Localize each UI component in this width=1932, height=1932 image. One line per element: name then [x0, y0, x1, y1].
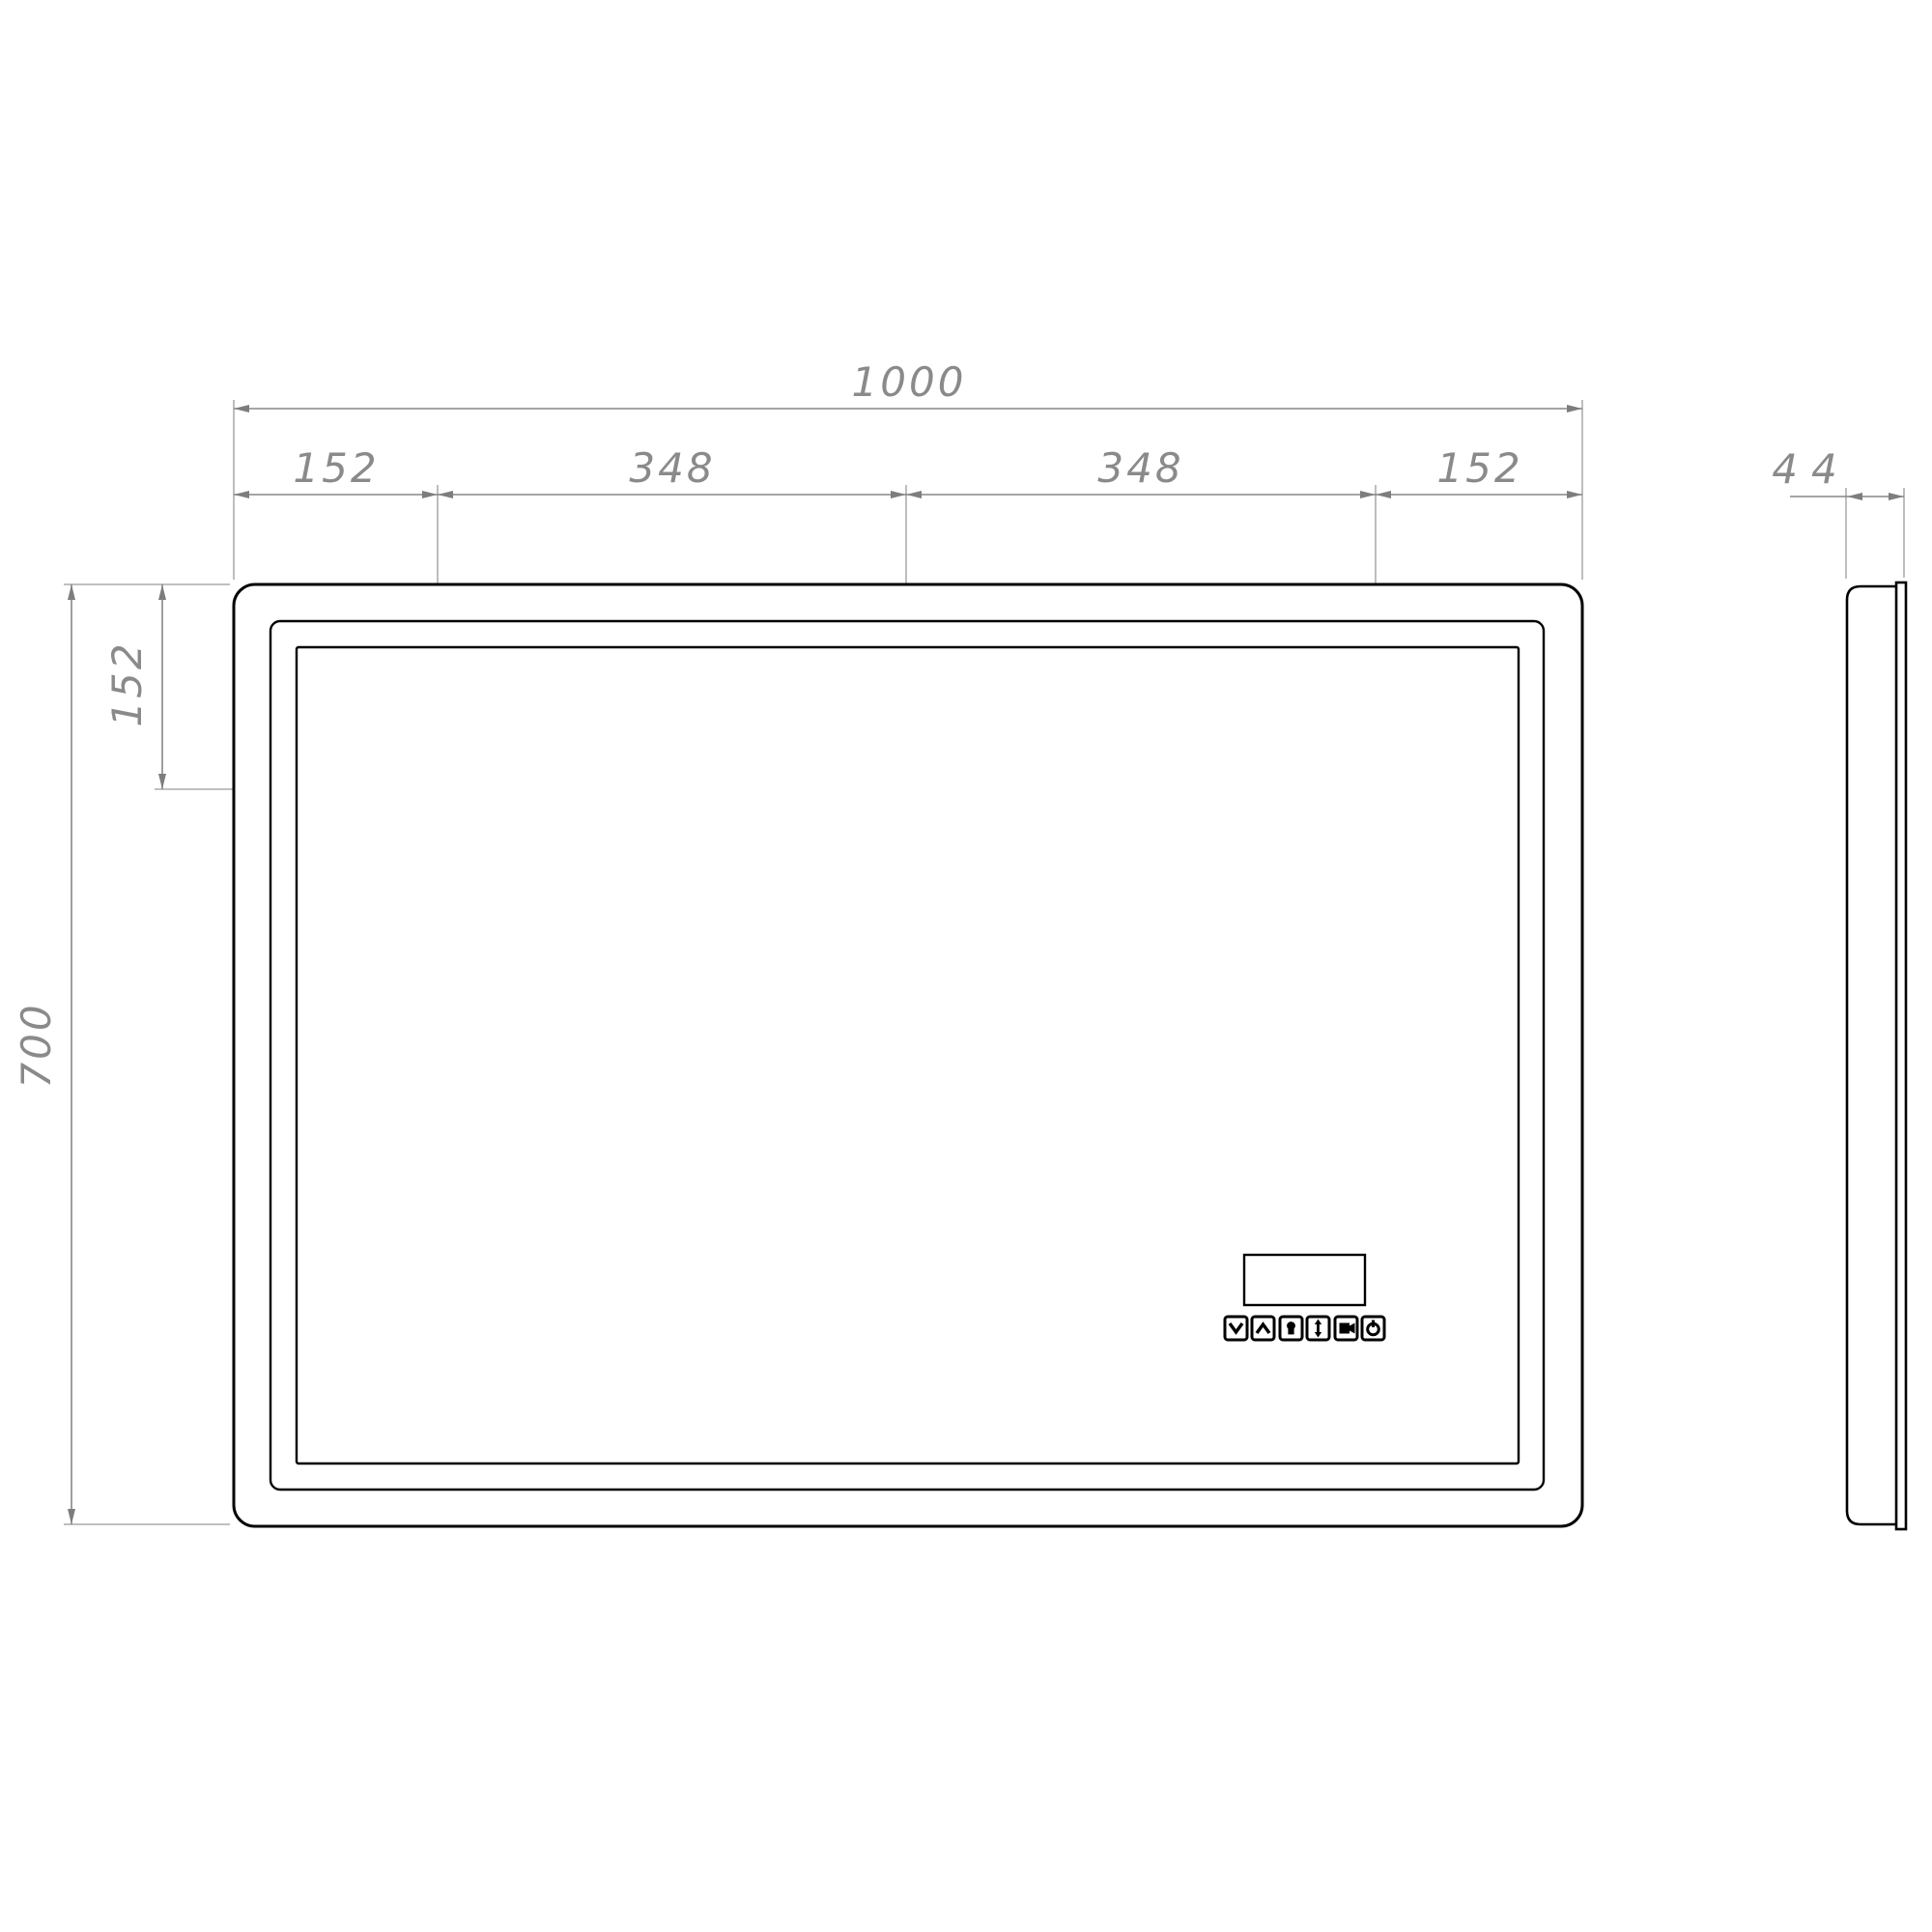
mirror-technical-drawing: 1000 152 348 348 152 44 700 152 A B A — [0, 0, 1932, 1932]
display-window — [1244, 1255, 1365, 1305]
mirror-side-view — [1847, 582, 1906, 1529]
dimension-label-height: 700 — [13, 1002, 60, 1088]
side-view-glass-edge — [1896, 582, 1906, 1529]
light-icon — [1287, 1321, 1295, 1334]
dimension-label-top-offset: 152 — [103, 640, 151, 726]
dimension-label-depth: 44 — [1772, 445, 1850, 493]
side-view-body — [1847, 586, 1899, 1524]
mirror-inner-glass — [297, 647, 1519, 1463]
button-chevron-up — [1252, 1317, 1274, 1340]
dimension-label-total-width: 1000 — [852, 358, 967, 406]
dimension-label-segment-3: 348 — [1097, 444, 1183, 492]
dimension-label-segment-1: 152 — [293, 444, 379, 492]
dimension-label-segment-2: 348 — [629, 444, 715, 492]
button-chevron-down — [1225, 1317, 1247, 1340]
mirror-front-view — [234, 584, 1582, 1526]
defogger-icon — [1340, 1323, 1355, 1334]
dimension-label-segment-4: 152 — [1436, 444, 1522, 492]
